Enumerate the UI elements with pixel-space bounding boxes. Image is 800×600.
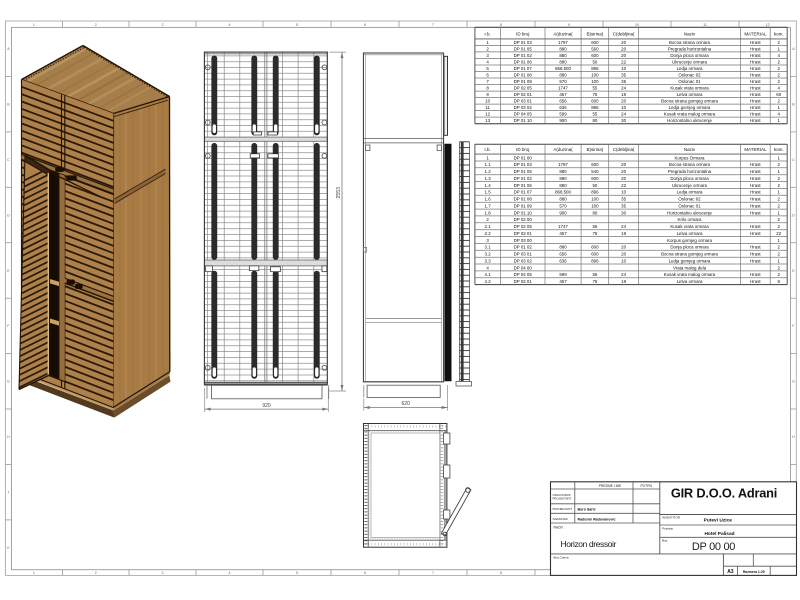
svg-text:DP 01 02: DP 01 02	[514, 53, 533, 58]
svg-text:4: 4	[486, 265, 489, 270]
svg-text:2: 2	[777, 40, 780, 45]
svg-text:3: 3	[162, 571, 164, 575]
svg-text:Kusak vrata malog ormara: Kusak vrata malog ormara	[664, 112, 716, 117]
svg-text:3: 3	[486, 53, 489, 58]
svg-text:55: 55	[592, 112, 597, 117]
svg-text:Projekat: Projekat	[662, 527, 673, 531]
svg-text:A: A	[792, 47, 795, 51]
svg-text:2: 2	[777, 66, 780, 71]
svg-text:D: D	[7, 213, 10, 217]
svg-text:A3: A3	[727, 569, 734, 575]
svg-text:1.3: 1.3	[485, 176, 492, 181]
svg-text:Kusak vrata ormara: Kusak vrata ormara	[670, 86, 709, 91]
svg-text:55: 55	[592, 224, 597, 229]
svg-text:55: 55	[592, 86, 597, 91]
svg-text:DP 02 05: DP 02 05	[514, 224, 533, 229]
svg-text:E: E	[792, 269, 795, 273]
svg-text:DP 04 00: DP 04 00	[514, 265, 533, 270]
svg-text:DP 01 10: DP 01 10	[514, 210, 533, 215]
svg-text:880: 880	[559, 59, 567, 64]
svg-text:12: 12	[766, 23, 770, 27]
svg-text:DP 01 07: DP 01 07	[514, 190, 533, 195]
svg-text:Hrast: Hrast	[750, 66, 761, 71]
svg-text:896: 896	[591, 66, 599, 71]
svg-text:55: 55	[592, 272, 597, 277]
svg-text:22: 22	[776, 231, 781, 236]
svg-text:75: 75	[592, 279, 597, 284]
svg-text:1.4: 1.4	[485, 183, 492, 188]
svg-text:C(debljina(: C(debljina(	[613, 32, 635, 37]
svg-text:880: 880	[559, 46, 567, 51]
svg-text:2: 2	[777, 204, 780, 209]
svg-text:DP 01 08: DP 01 08	[514, 72, 533, 77]
svg-text:2: 2	[95, 23, 97, 27]
svg-text:6: 6	[364, 23, 366, 27]
svg-text:G: G	[7, 380, 10, 384]
svg-text:3: 3	[486, 238, 489, 243]
svg-text:Hrast: Hrast	[750, 224, 761, 229]
svg-text:880: 880	[559, 245, 567, 250]
svg-text:4.2: 4.2	[485, 279, 492, 284]
svg-text:11: 11	[485, 105, 490, 110]
svg-text:75: 75	[592, 92, 597, 97]
svg-text:6: 6	[486, 72, 489, 77]
svg-text:19: 19	[621, 279, 626, 284]
svg-text:1: 1	[777, 155, 780, 160]
svg-text:3.2: 3.2	[485, 252, 492, 257]
svg-text:Oslonac 02: Oslonac 02	[678, 197, 701, 202]
svg-text:4: 4	[229, 23, 231, 27]
svg-text:Hrast: Hrast	[750, 40, 761, 45]
svg-text:Bocna strana gornjeg ormara: Bocna strana gornjeg ormara	[661, 252, 718, 257]
svg-text:Hrast: Hrast	[750, 112, 761, 117]
svg-text:MATERIAL: MATERIAL	[744, 32, 767, 37]
svg-text:1: 1	[777, 190, 780, 195]
svg-text:Putevi Uzice: Putevi Uzice	[704, 518, 733, 524]
svg-text:570: 570	[559, 204, 567, 209]
svg-text:Letva ormara: Letva ormara	[677, 92, 703, 97]
svg-text:Hrast: Hrast	[750, 190, 761, 195]
svg-text:896: 896	[591, 258, 599, 263]
svg-text:2: 2	[777, 197, 780, 202]
svg-text:656: 656	[559, 252, 567, 257]
svg-text:2: 2	[777, 183, 780, 188]
svg-text:20: 20	[621, 162, 626, 167]
svg-text:9: 9	[568, 23, 570, 27]
svg-text:20: 20	[621, 53, 626, 58]
svg-text:Hrast: Hrast	[750, 92, 761, 97]
svg-text:Hrast: Hrast	[750, 279, 761, 284]
svg-text:Hrast: Hrast	[750, 86, 761, 91]
svg-text:D: D	[792, 213, 795, 217]
svg-text:20: 20	[621, 169, 626, 174]
svg-text:1: 1	[777, 118, 780, 123]
svg-text:DP 01 05: DP 01 05	[514, 46, 533, 51]
svg-text:C(debljina(: C(debljina(	[613, 147, 635, 152]
svg-text:6: 6	[364, 571, 366, 575]
svg-text:10: 10	[485, 99, 490, 104]
svg-text:Hrast: Hrast	[750, 272, 761, 277]
svg-text:DP 01 06: DP 01 06	[514, 59, 533, 64]
svg-text:POTPIS: POTPIS	[641, 484, 653, 488]
svg-text:620: 620	[402, 401, 411, 407]
svg-text:2: 2	[777, 224, 780, 229]
svg-text:100: 100	[591, 79, 599, 84]
svg-text:PREZIME I IME: PREZIME I IME	[599, 484, 622, 488]
svg-text:Oslonac 02: Oslonac 02	[678, 72, 701, 77]
svg-text:Korpus Ormara: Korpus Ormara	[674, 155, 705, 160]
svg-text:Hrast: Hrast	[750, 162, 761, 167]
svg-text:Ukrucenje ormara: Ukrucenje ormara	[672, 183, 707, 188]
svg-text:599: 599	[559, 112, 567, 117]
svg-text:35: 35	[621, 197, 626, 202]
svg-text:4: 4	[486, 59, 489, 64]
svg-text:35: 35	[621, 79, 626, 84]
svg-text:880: 880	[559, 53, 567, 58]
svg-text:Broj Crteza: Broj Crteza	[554, 556, 569, 560]
svg-text:PROJEKTANT: PROJEKTANT	[553, 497, 572, 501]
svg-text:868.500: 868.500	[555, 190, 571, 195]
svg-text:H: H	[792, 435, 795, 439]
svg-text:22: 22	[621, 183, 626, 188]
svg-text:11: 11	[703, 23, 707, 27]
svg-text:C: C	[792, 158, 795, 162]
svg-text:F: F	[792, 324, 795, 328]
svg-text:457: 457	[559, 92, 567, 97]
svg-text:DP 01 05: DP 01 05	[514, 169, 533, 174]
svg-text:1.6: 1.6	[485, 197, 492, 202]
svg-text:DP 01 09: DP 01 09	[514, 204, 533, 209]
svg-text:920: 920	[262, 403, 271, 409]
svg-text:DP 02 01: DP 02 01	[514, 279, 533, 284]
svg-text:7: 7	[486, 79, 489, 84]
svg-text:570: 570	[559, 79, 567, 84]
svg-text:5: 5	[486, 66, 489, 71]
svg-text:1: 1	[486, 155, 489, 160]
svg-text:1747: 1747	[558, 86, 568, 91]
svg-text:Naziv: Naziv	[684, 32, 696, 37]
svg-text:24: 24	[621, 272, 626, 277]
svg-text:Ukrucenje ormara: Ukrucenje ormara	[672, 59, 707, 64]
svg-text:3.3: 3.3	[485, 258, 492, 263]
svg-text:ID broj: ID broj	[516, 147, 529, 152]
svg-text:22: 22	[621, 59, 626, 64]
svg-text:E: E	[7, 269, 10, 273]
svg-text:Korpus gornjeg ormara: Korpus gornjeg ormara	[667, 238, 712, 243]
svg-text:1: 1	[777, 105, 780, 110]
svg-text:19: 19	[621, 92, 626, 97]
svg-text:2: 2	[777, 265, 780, 270]
svg-text:2: 2	[486, 46, 489, 51]
svg-text:50: 50	[592, 183, 597, 188]
svg-text:10: 10	[621, 66, 626, 71]
svg-text:Boro Saric: Boro Saric	[578, 508, 596, 512]
svg-text:457: 457	[559, 279, 567, 284]
svg-text:35: 35	[621, 204, 626, 209]
svg-text:2: 2	[777, 162, 780, 167]
svg-text:1747: 1747	[558, 224, 568, 229]
svg-text:r.b.: r.b.	[484, 32, 490, 37]
svg-text:Bocna strana ormara: Bocna strana ormara	[669, 162, 711, 167]
svg-text:Razmera 1:20: Razmera 1:20	[743, 570, 765, 574]
svg-text:2.2: 2.2	[485, 231, 492, 236]
svg-text:DP 02 05: DP 02 05	[514, 86, 533, 91]
svg-text:636: 636	[559, 258, 567, 263]
svg-text:DP 00 00: DP 00 00	[692, 541, 735, 553]
svg-text:DP 01 03: DP 01 03	[514, 40, 533, 45]
svg-text:Hrast: Hrast	[750, 258, 761, 263]
svg-text:900: 900	[559, 210, 567, 215]
svg-text:2553: 2553	[336, 187, 342, 199]
svg-text:100: 100	[591, 197, 599, 202]
svg-text:Donja ploca ormara: Donja ploca ormara	[670, 53, 709, 58]
svg-text:DP 01 02: DP 01 02	[514, 176, 533, 181]
svg-text:1.5: 1.5	[485, 190, 492, 195]
svg-text:B)sirina): B)sirina)	[587, 147, 604, 152]
svg-text:50: 50	[592, 59, 597, 64]
svg-text:2: 2	[777, 59, 780, 64]
svg-text:Hrast: Hrast	[750, 59, 761, 64]
svg-text:4: 4	[777, 112, 780, 117]
svg-text:24: 24	[621, 112, 626, 117]
svg-text:4.1: 4.1	[485, 272, 492, 277]
svg-text:20: 20	[621, 245, 626, 250]
svg-text:2: 2	[777, 272, 780, 277]
svg-text:880: 880	[559, 183, 567, 188]
svg-text:DP 01 10: DP 01 10	[514, 118, 533, 123]
svg-text:30: 30	[621, 210, 626, 215]
svg-text:Horizontalno ukrucenje: Horizontalno ukrucenje	[667, 210, 712, 215]
svg-text:DP 03 01: DP 03 01	[514, 252, 533, 257]
svg-text:1.7: 1.7	[485, 204, 492, 209]
svg-text:Hrast: Hrast	[750, 183, 761, 188]
svg-text:600: 600	[591, 99, 599, 104]
svg-text:Hrast: Hrast	[750, 72, 761, 77]
svg-text:2.1: 2.1	[485, 224, 492, 229]
svg-text:10: 10	[635, 23, 639, 27]
svg-text:Radomir Radovanovic: Radomir Radovanovic	[578, 517, 616, 521]
svg-text:457: 457	[559, 231, 567, 236]
svg-text:Kusak vrata ormara: Kusak vrata ormara	[670, 224, 709, 229]
svg-text:Horizon dressoir: Horizon dressoir	[561, 539, 617, 549]
svg-text:1: 1	[33, 23, 35, 27]
svg-text:Bocna strana ormara: Bocna strana ormara	[669, 40, 711, 45]
svg-text:896: 896	[591, 105, 599, 110]
svg-text:Hrast: Hrast	[750, 99, 761, 104]
svg-text:880: 880	[559, 72, 567, 77]
svg-text:13: 13	[485, 118, 490, 123]
svg-text:Ledja gornjeg ormara: Ledja gornjeg ormara	[669, 105, 711, 110]
svg-text:Ledja gornjeg ormara: Ledja gornjeg ormara	[669, 258, 711, 263]
svg-text:DP 03 02: DP 03 02	[514, 258, 533, 263]
svg-text:Donja ploca ormara: Donja ploca ormara	[670, 245, 709, 250]
svg-text:1797: 1797	[558, 40, 568, 45]
svg-text:880: 880	[559, 176, 567, 181]
svg-text:80: 80	[592, 118, 597, 123]
svg-text:A: A	[7, 47, 10, 51]
svg-text:Hrast: Hrast	[750, 231, 761, 236]
svg-text:10: 10	[621, 190, 626, 195]
svg-text:GIR D.O.O. Adrani: GIR D.O.O. Adrani	[671, 486, 777, 501]
svg-text:Hrast: Hrast	[750, 210, 761, 215]
svg-text:DP 01 08: DP 01 08	[514, 197, 533, 202]
svg-text:1.2: 1.2	[485, 169, 492, 174]
svg-text:DP 02 00: DP 02 00	[514, 217, 533, 222]
svg-text:Broj: Broj	[662, 539, 668, 543]
svg-text:DP 03 02: DP 03 02	[514, 105, 533, 110]
svg-text:DP 03 00: DP 03 00	[514, 238, 533, 243]
svg-text:20: 20	[621, 40, 626, 45]
svg-text:Pregrada horizontalna: Pregrada horizontalna	[668, 169, 712, 174]
svg-text:2: 2	[777, 99, 780, 104]
svg-text:Donja ploca ormara: Donja ploca ormara	[670, 176, 709, 181]
svg-text:Bocna strana gornjeg ormara: Bocna strana gornjeg ormara	[661, 99, 718, 104]
svg-text:C: C	[7, 158, 10, 162]
svg-text:kom.: kom.	[774, 147, 784, 152]
svg-text:1: 1	[777, 46, 780, 51]
svg-text:3.1: 3.1	[485, 245, 492, 250]
svg-text:DP 01 09: DP 01 09	[514, 79, 533, 84]
svg-text:2: 2	[777, 217, 780, 222]
svg-text:2: 2	[95, 571, 97, 575]
svg-text:19: 19	[621, 231, 626, 236]
svg-text:4: 4	[777, 53, 780, 58]
svg-text:600: 600	[591, 176, 599, 181]
svg-text:Oslonac 01: Oslonac 01	[678, 204, 701, 209]
svg-text:DP 02 01: DP 02 01	[514, 231, 533, 236]
svg-text:ID broj: ID broj	[516, 32, 529, 37]
svg-text:2: 2	[777, 72, 780, 77]
svg-text:Hrast: Hrast	[750, 176, 761, 181]
svg-text:DP 02 01: DP 02 01	[514, 92, 533, 97]
svg-text:2: 2	[777, 176, 780, 181]
svg-text:J: J	[8, 491, 10, 495]
svg-text:Hrast: Hrast	[750, 118, 761, 123]
svg-text:20: 20	[621, 46, 626, 51]
svg-text:600: 600	[591, 162, 599, 167]
svg-text:G: G	[792, 380, 795, 384]
svg-text:DP 01 02: DP 01 02	[514, 245, 533, 250]
svg-text:Horizontalno ukrucenje: Horizontalno ukrucenje	[667, 118, 712, 123]
svg-text:DP 01 03: DP 01 03	[514, 162, 533, 167]
svg-text:12: 12	[485, 112, 490, 117]
svg-text:656: 656	[559, 99, 567, 104]
svg-text:kom.: kom.	[774, 32, 784, 37]
svg-text:60: 60	[776, 92, 781, 97]
svg-text:Hrast: Hrast	[750, 245, 761, 250]
svg-text:1: 1	[777, 238, 780, 243]
svg-text:600: 600	[591, 252, 599, 257]
svg-text:560: 560	[591, 46, 599, 51]
svg-text:880: 880	[559, 197, 567, 202]
svg-text:Hrast: Hrast	[750, 204, 761, 209]
svg-text:20: 20	[621, 99, 626, 104]
svg-text:DP 04 05: DP 04 05	[514, 112, 533, 117]
svg-text:8: 8	[777, 279, 780, 284]
svg-text:600: 600	[591, 53, 599, 58]
svg-text:Hrast: Hrast	[750, 169, 761, 174]
svg-text:Naziv: Naziv	[684, 147, 696, 152]
svg-text:10: 10	[621, 105, 626, 110]
svg-text:100: 100	[591, 72, 599, 77]
svg-text:24: 24	[621, 224, 626, 229]
svg-text:600: 600	[591, 245, 599, 250]
svg-text:Ledja ormara: Ledja ormara	[677, 66, 703, 71]
svg-text:24: 24	[621, 86, 626, 91]
svg-text:5: 5	[296, 23, 298, 27]
svg-text:DP 01 07: DP 01 07	[514, 66, 533, 71]
svg-text:1: 1	[33, 571, 35, 575]
svg-text:1.8: 1.8	[485, 210, 492, 215]
svg-text:Pregrada horizontalna: Pregrada horizontalna	[668, 46, 712, 51]
svg-text:A(duzina(: A(duzina(	[553, 32, 573, 37]
svg-text:K: K	[7, 546, 10, 550]
svg-text:DP 04 05: DP 04 05	[514, 272, 533, 277]
svg-text:80: 80	[592, 210, 597, 215]
svg-text:599: 599	[559, 272, 567, 277]
svg-text:4: 4	[777, 86, 780, 91]
svg-text:1: 1	[777, 169, 780, 174]
svg-text:900: 900	[559, 118, 567, 123]
svg-text:Oslonac 01: Oslonac 01	[678, 79, 701, 84]
svg-text:Hotel Palisad: Hotel Palisad	[704, 531, 734, 537]
svg-text:100: 100	[591, 204, 599, 209]
svg-text:35: 35	[621, 72, 626, 77]
svg-text:2: 2	[777, 79, 780, 84]
svg-text:600: 600	[591, 40, 599, 45]
svg-text:896: 896	[591, 190, 599, 195]
svg-text:75: 75	[592, 231, 597, 236]
svg-text:Kusak vrata malog ormara: Kusak vrata malog ormara	[664, 272, 716, 277]
svg-text:2: 2	[486, 217, 489, 222]
svg-text:1: 1	[486, 40, 489, 45]
svg-text:Ledja ormara: Ledja ormara	[677, 190, 703, 195]
svg-text:Hrast: Hrast	[750, 53, 761, 58]
svg-text:10: 10	[621, 258, 626, 263]
svg-text:B: B	[792, 103, 795, 107]
svg-text:8: 8	[500, 571, 502, 575]
svg-text:7: 7	[432, 23, 434, 27]
svg-text:B)sirina): B)sirina)	[587, 32, 604, 37]
svg-text:Vrata malog dela: Vrata malog dela	[673, 265, 707, 270]
svg-text:2: 2	[777, 252, 780, 257]
svg-text:Hrast: Hrast	[750, 252, 761, 257]
svg-text:DP 01 06: DP 01 06	[514, 183, 533, 188]
svg-text:9: 9	[486, 92, 489, 97]
svg-text:1.1: 1.1	[485, 162, 492, 167]
svg-text:8: 8	[500, 23, 502, 27]
svg-text:Hrast: Hrast	[750, 105, 761, 110]
svg-text:8: 8	[486, 86, 489, 91]
svg-text:7: 7	[432, 571, 434, 575]
svg-text:868.500: 868.500	[555, 66, 571, 71]
svg-text:20: 20	[621, 252, 626, 257]
svg-text:1797: 1797	[558, 162, 568, 167]
svg-text:A(duzina(: A(duzina(	[553, 147, 573, 152]
svg-text:NAZIV :: NAZIV :	[554, 526, 565, 530]
svg-text:r.b.: r.b.	[484, 147, 490, 152]
svg-text:Krilo ormara: Krilo ormara	[678, 217, 702, 222]
svg-text:Hrast: Hrast	[750, 79, 761, 84]
svg-text:1: 1	[777, 210, 780, 215]
svg-text:4: 4	[229, 571, 231, 575]
svg-text:B: B	[7, 103, 10, 107]
svg-text:636: 636	[559, 105, 567, 110]
svg-text:SARADNIK: SARADNIK	[553, 517, 568, 521]
svg-text:1: 1	[777, 258, 780, 263]
svg-text:INVESTITOR: INVESTITOR	[662, 516, 681, 520]
svg-text:Letva ormara: Letva ormara	[677, 231, 703, 236]
